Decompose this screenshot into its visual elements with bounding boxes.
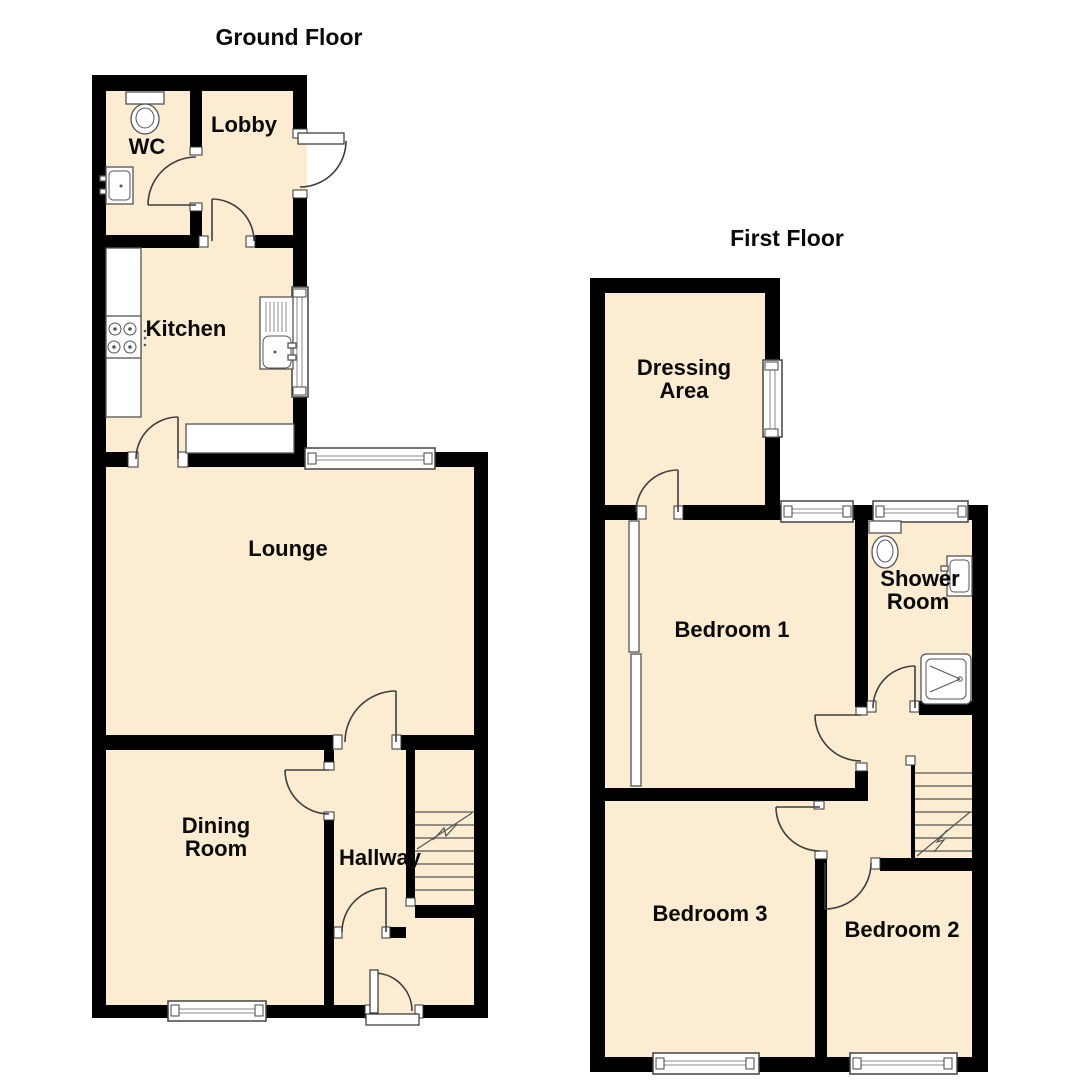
dining-room-window: [168, 1001, 266, 1021]
first-floor-title: First Floor: [730, 225, 844, 251]
ground-floor-title: Ground Floor: [216, 24, 363, 50]
bedroom3-label: Bedroom 3: [653, 901, 768, 926]
hallway-label: Hallway: [339, 845, 422, 870]
ground-floor-plan: Ground Floor WC Lobby Kitchen Lounge Din…: [92, 24, 488, 1025]
kitchen-label: Kitchen: [146, 316, 227, 341]
shower-tray-icon: [921, 654, 971, 704]
lounge-label: Lounge: [248, 536, 327, 561]
bedroom1-wardrobe: [629, 521, 641, 786]
hob-icon: [106, 316, 146, 358]
lobby-label: Lobby: [211, 112, 278, 137]
shower-room-label-line2: Room: [887, 589, 949, 614]
bedroom1-label: Bedroom 1: [675, 617, 790, 642]
kitchen-window: [292, 287, 308, 397]
first-floor-plan: First Floor Dressing Area Bedroom 1 Show…: [590, 225, 988, 1074]
bedroom2-window: [850, 1053, 957, 1074]
floorplan-canvas: Ground Floor WC Lobby Kitchen Lounge Din…: [0, 0, 1080, 1080]
shower-room-window: [873, 501, 968, 522]
dining-room-label-line1: Dining: [182, 813, 250, 838]
bedroom1-window: [781, 501, 853, 522]
kitchen-sink-icon: [260, 297, 296, 369]
shower-toilet-icon: [869, 521, 901, 568]
floorplan-drawing: Ground Floor WC Lobby Kitchen Lounge Din…: [0, 0, 1080, 1080]
dressing-area-label-line1: Dressing: [637, 355, 731, 380]
lounge-window: [305, 448, 435, 469]
wc-label: WC: [129, 134, 166, 159]
shower-room-label-line1: Shower: [880, 566, 960, 591]
dressing-area-window: [763, 360, 782, 437]
dining-room-label-line2: Room: [185, 836, 247, 861]
bedroom2-label: Bedroom 2: [845, 917, 960, 942]
dressing-area-label-line2: Area: [660, 378, 710, 403]
bedroom3-window: [653, 1053, 759, 1074]
